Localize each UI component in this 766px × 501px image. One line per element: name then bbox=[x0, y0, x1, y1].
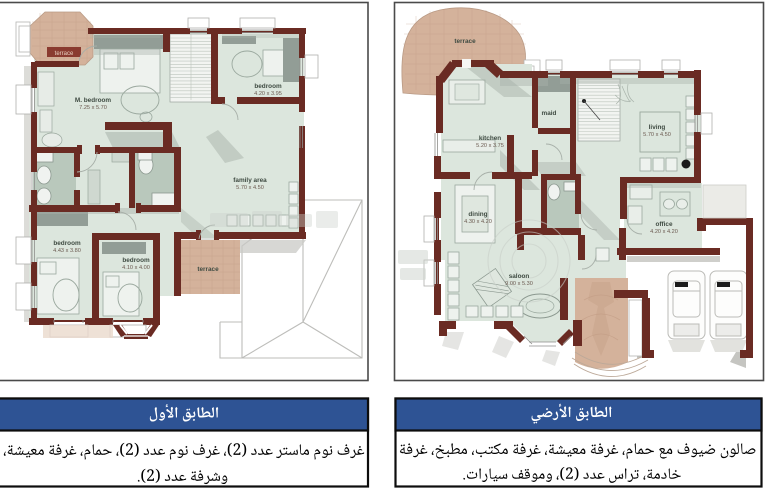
svg-text:5.70 x 4.50: 5.70 x 4.50 bbox=[643, 132, 671, 138]
svg-text:saloon: saloon bbox=[509, 273, 530, 280]
svg-text:4.43 x 3.80: 4.43 x 3.80 bbox=[53, 248, 81, 254]
svg-text:4.30 x 4.20: 4.30 x 4.20 bbox=[464, 219, 492, 225]
svg-text:4.20 x 3.95: 4.20 x 3.95 bbox=[254, 91, 282, 97]
svg-text:terrace: terrace bbox=[197, 266, 219, 273]
svg-text:dining: dining bbox=[468, 211, 487, 218]
svg-text:bedroom: bedroom bbox=[254, 83, 282, 90]
svg-text:bedroom: bedroom bbox=[122, 257, 150, 264]
svg-text:M. bedroom: M. bedroom bbox=[75, 97, 112, 104]
svg-text:family area: family area bbox=[233, 177, 267, 184]
svg-text:kitchen: kitchen bbox=[479, 135, 501, 142]
svg-text:9.00 x 5.30: 9.00 x 5.30 bbox=[505, 281, 533, 287]
svg-text:bedroom: bedroom bbox=[53, 240, 81, 247]
svg-text:4.10 x 4.00: 4.10 x 4.00 bbox=[122, 265, 150, 271]
svg-text:office: office bbox=[655, 221, 672, 228]
svg-text:maid: maid bbox=[542, 110, 557, 117]
svg-text:living: living bbox=[649, 124, 666, 131]
svg-text:5.20 x 3.75: 5.20 x 3.75 bbox=[476, 143, 504, 149]
svg-text:4.20 x 4.20: 4.20 x 4.20 bbox=[650, 229, 678, 235]
svg-text:terrace: terrace bbox=[454, 38, 476, 45]
svg-text:terrace: terrace bbox=[55, 51, 74, 57]
svg-text:7.25 x 5.70: 7.25 x 5.70 bbox=[79, 105, 107, 111]
svg-text:5.70 x 4.50: 5.70 x 4.50 bbox=[236, 185, 264, 191]
